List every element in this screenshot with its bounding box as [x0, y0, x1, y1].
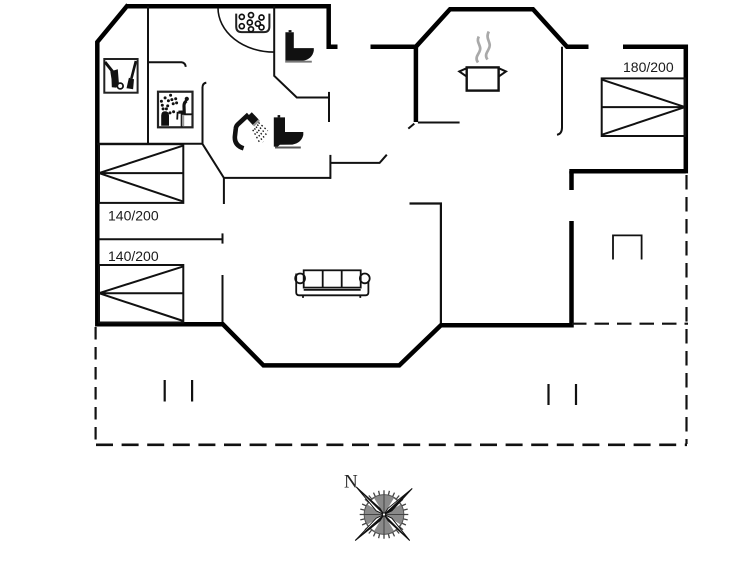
svg-text:N: N — [344, 472, 358, 493]
svg-text:180/200: 180/200 — [623, 59, 674, 75]
svg-text:140/200: 140/200 — [108, 248, 159, 264]
svg-text:140/200: 140/200 — [108, 208, 159, 224]
